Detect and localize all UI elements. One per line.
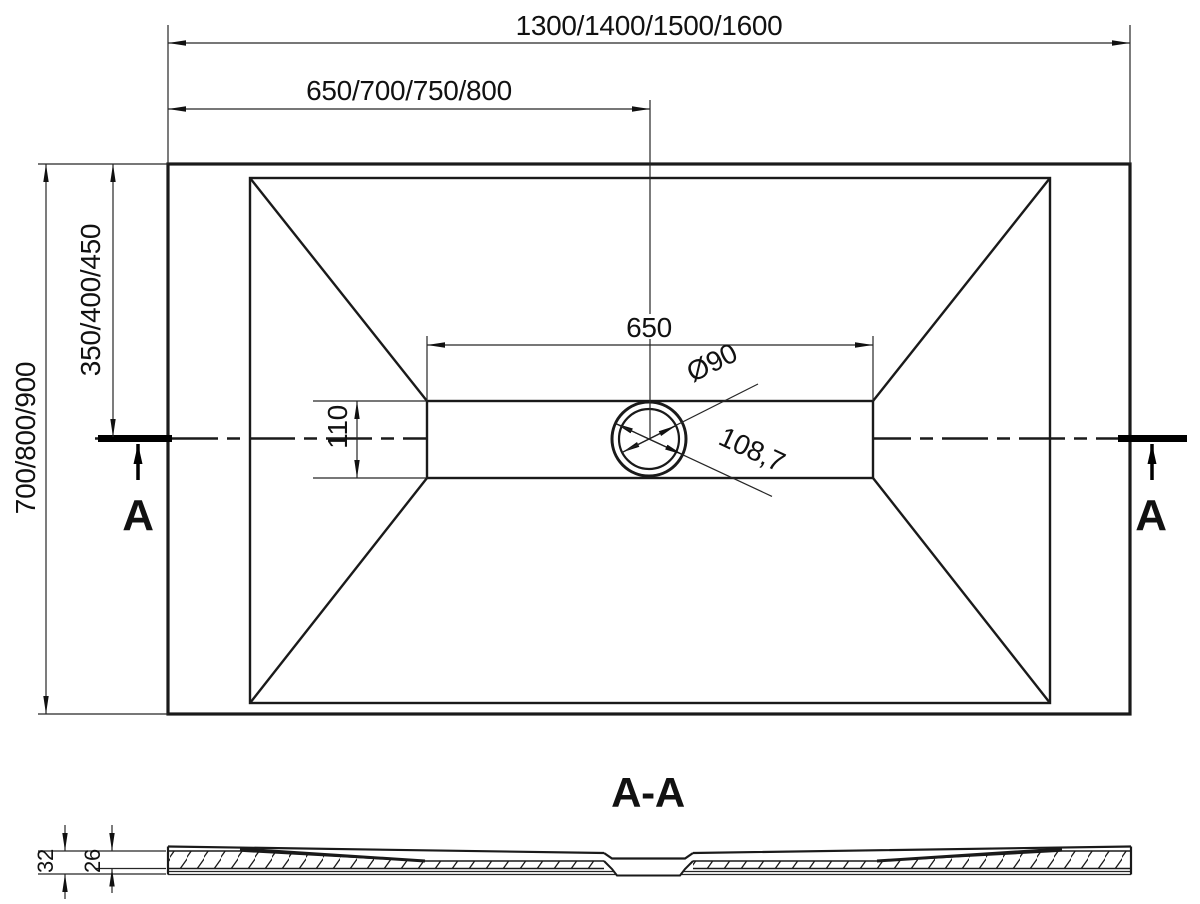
dim-depth-to-drain-label: 350/400/450 <box>75 224 106 376</box>
drain-recess-profile <box>604 861 693 876</box>
section-marker-right-label: A <box>1135 491 1166 540</box>
top-view: A A 1300/1400/1500/1600 650/700/750/800 … <box>10 10 1187 714</box>
section-title: A-A <box>611 769 685 816</box>
dim-base-height-label: 26 <box>80 849 105 873</box>
dim-edge-height-label: 32 <box>33 849 58 873</box>
technical-drawing: A A 1300/1400/1500/1600 650/700/750/800 … <box>0 0 1200 904</box>
dim-width-total-label: 1300/1400/1500/1600 <box>516 10 783 41</box>
drain-cover-edge <box>604 853 693 859</box>
dim-channel-width-label: 110 <box>322 405 353 449</box>
section-view: A-A 32 26 <box>33 769 1131 899</box>
drawing-canvas: A A 1300/1400/1500/1600 650/700/750/800 … <box>0 0 1200 904</box>
dim-width-to-drain-label: 650/700/750/800 <box>306 75 512 106</box>
dim-depth-total-label: 700/800/900 <box>10 362 41 514</box>
section-marker-left-label: A <box>122 491 153 540</box>
dim-channel-length-label: 650 <box>626 312 672 343</box>
section-top-edge <box>168 847 1131 854</box>
